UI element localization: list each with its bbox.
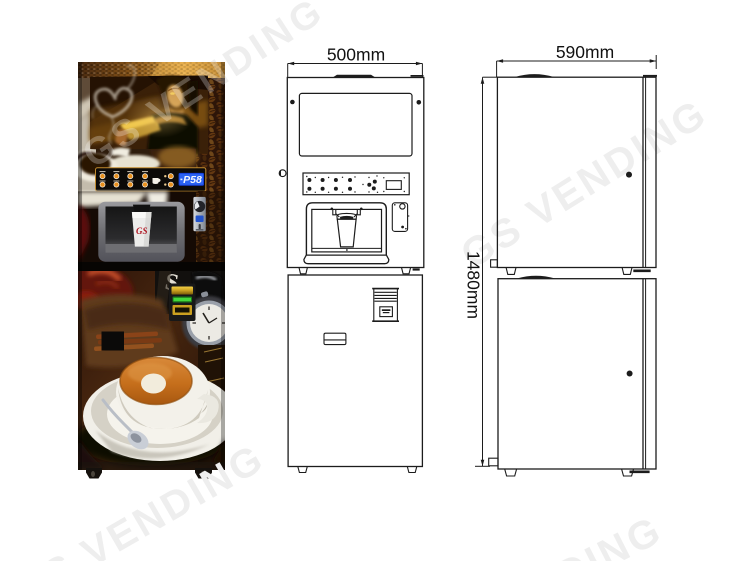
svg-text:P58: P58 [183,174,202,186]
svg-text:590mm: 590mm [556,42,614,62]
svg-text:GS: GS [136,226,148,236]
svg-text:500mm: 500mm [327,45,385,65]
svg-text:1480mm: 1480mm [463,251,483,319]
